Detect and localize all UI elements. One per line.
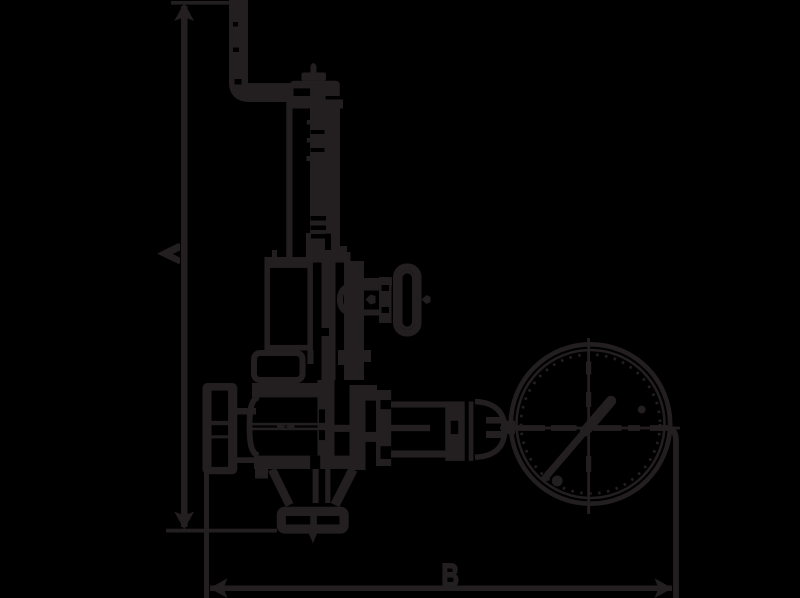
svg-text:B: B	[442, 558, 460, 594]
